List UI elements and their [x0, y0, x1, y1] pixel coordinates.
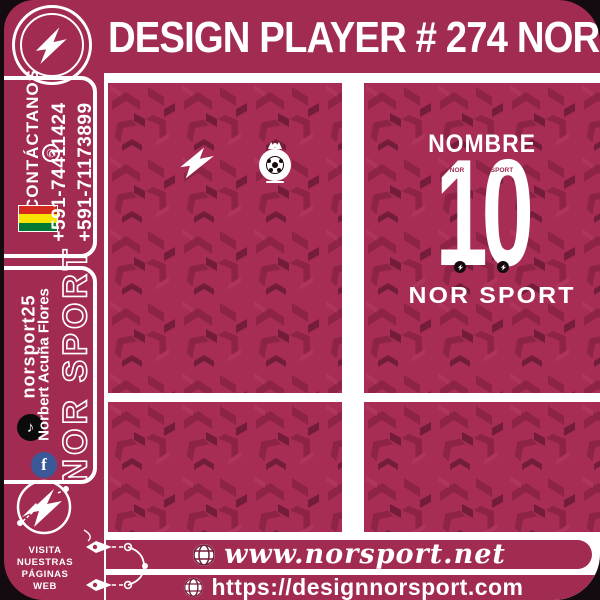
facebook-handle[interactable]: Norbert Acuña Flores	[36, 280, 53, 450]
vertical-brand-wordmark: NOR SPORT	[57, 284, 96, 484]
design-sheet: DESIGN PLAYER # 274 NOR	[0, 0, 600, 600]
contact-label: CONTÁCTANOS	[23, 71, 43, 211]
visit-pages-caption: VISITA NUESTRAS PÁGINAS WEB	[12, 545, 78, 593]
mini-lightning-dot	[497, 261, 509, 273]
pattern-swatch-panel-right	[364, 402, 600, 532]
pattern-swatch-panel-left	[108, 402, 342, 532]
website-url[interactable]: www.norsport.net	[224, 541, 506, 568]
phone-number[interactable]: +591-74411424	[49, 87, 71, 257]
back-brand-wordmark: NOR SPORT	[408, 282, 557, 309]
design-site-link-bar[interactable]: https://designnorsport.com	[106, 575, 600, 600]
design-canvas: DESIGN PLAYER # 274 NOR	[4, 0, 600, 600]
team-soccer-crest	[254, 139, 298, 187]
jersey-back-panel: NOMBRE 10 NOR SPORT NOR SPORT	[364, 83, 600, 393]
globe-icon	[192, 543, 216, 567]
jersey-front-panel	[108, 83, 342, 393]
number-insert-right: SPORT	[487, 167, 517, 174]
page-title: DESIGN PLAYER # 274 NOR	[108, 13, 599, 63]
pen-nib-decoration	[82, 528, 174, 600]
nor-sport-pen-lightning-badge	[14, 477, 74, 537]
phone-number[interactable]: +591-71173899	[75, 87, 97, 257]
facebook-icon[interactable]: f	[31, 452, 57, 478]
mini-lightning-dot	[454, 261, 466, 273]
lightning-bolt-logo	[176, 147, 218, 179]
website-link-bar[interactable]: www.norsport.net	[106, 540, 592, 569]
design-site-url[interactable]: https://designnorsport.com	[212, 576, 524, 599]
globe-icon	[183, 577, 204, 598]
lightning-bolt-icon	[20, 13, 84, 77]
number-insert-left: NOR	[442, 167, 472, 174]
